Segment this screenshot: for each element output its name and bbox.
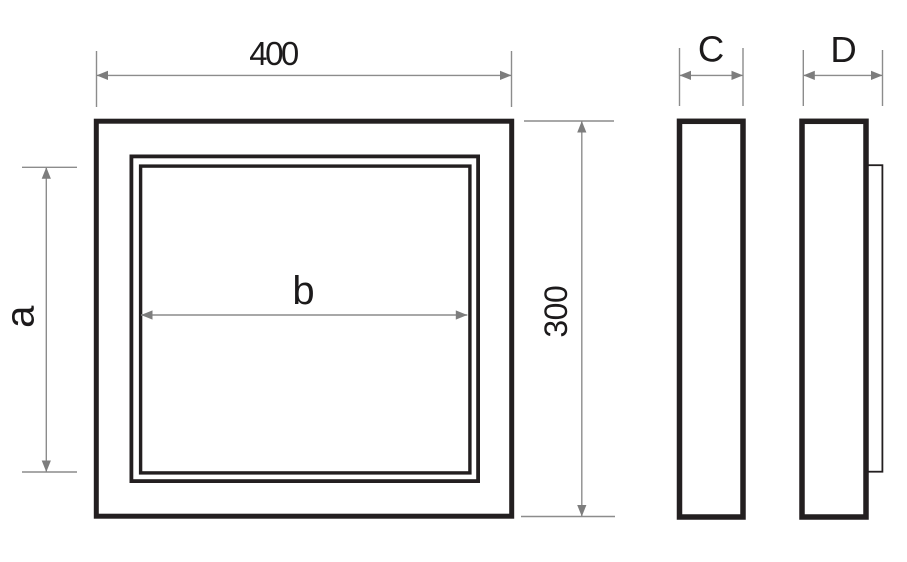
svg-text:300: 300	[538, 286, 574, 338]
svg-text:400: 400	[249, 35, 299, 72]
svg-text:D: D	[830, 29, 856, 70]
svg-text:C: C	[698, 29, 724, 70]
svg-text:b: b	[292, 269, 314, 313]
svg-text:a: a	[0, 305, 43, 328]
